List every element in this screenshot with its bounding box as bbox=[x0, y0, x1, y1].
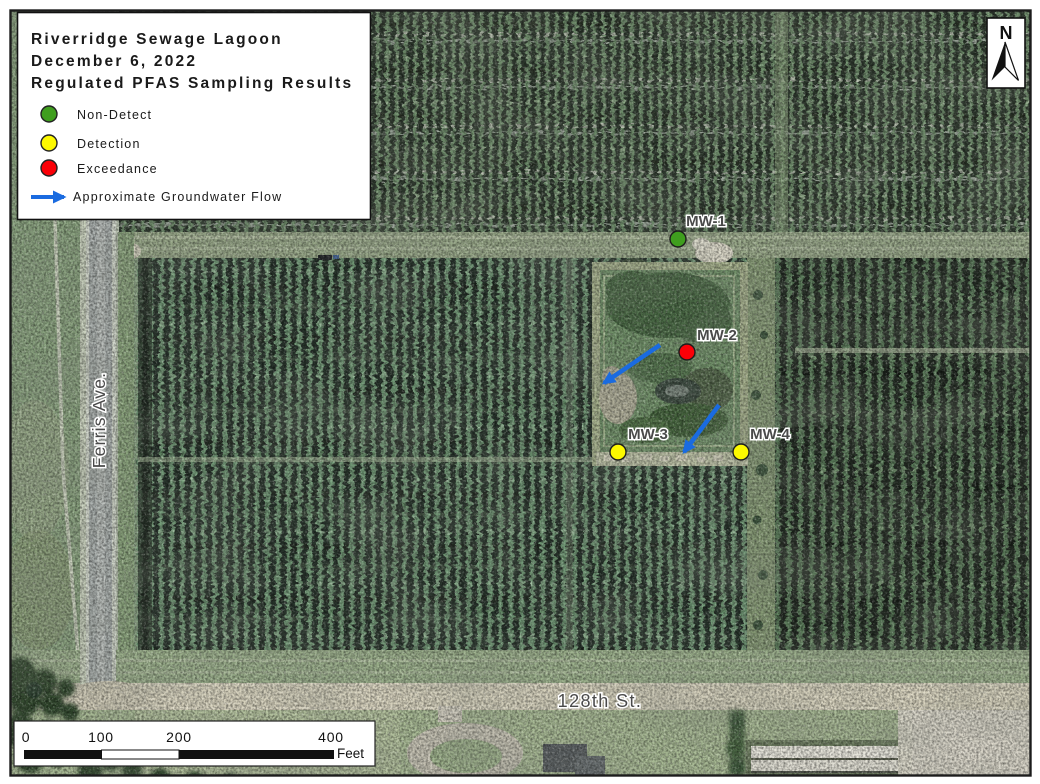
svg-text:100: 100 bbox=[88, 729, 114, 745]
svg-text:200: 200 bbox=[166, 729, 192, 745]
svg-text:Detection: Detection bbox=[77, 137, 141, 151]
svg-text:Feet: Feet bbox=[337, 746, 364, 761]
svg-text:MW-3: MW-3 bbox=[628, 426, 668, 443]
svg-text:MW-4: MW-4 bbox=[750, 426, 790, 443]
svg-text:Non-Detect: Non-Detect bbox=[77, 108, 152, 122]
svg-text:N: N bbox=[1000, 23, 1013, 43]
svg-text:400: 400 bbox=[318, 729, 344, 745]
svg-text:Approximate Groundwater Flow: Approximate Groundwater Flow bbox=[73, 190, 282, 204]
svg-text:Exceedance: Exceedance bbox=[77, 162, 158, 176]
svg-text:0: 0 bbox=[22, 729, 31, 745]
svg-text:December 6, 2022: December 6, 2022 bbox=[31, 53, 197, 70]
svg-text:Regulated PFAS Sampling Result: Regulated PFAS Sampling Results bbox=[31, 75, 353, 92]
svg-text:Ferris Ave.: Ferris Ave. bbox=[89, 372, 109, 469]
svg-text:128th St.: 128th St. bbox=[558, 691, 643, 711]
svg-text:Riverridge Sewage Lagoon: Riverridge Sewage Lagoon bbox=[31, 31, 283, 48]
svg-text:MW-2: MW-2 bbox=[697, 327, 737, 344]
svg-text:MW-1: MW-1 bbox=[686, 213, 726, 230]
